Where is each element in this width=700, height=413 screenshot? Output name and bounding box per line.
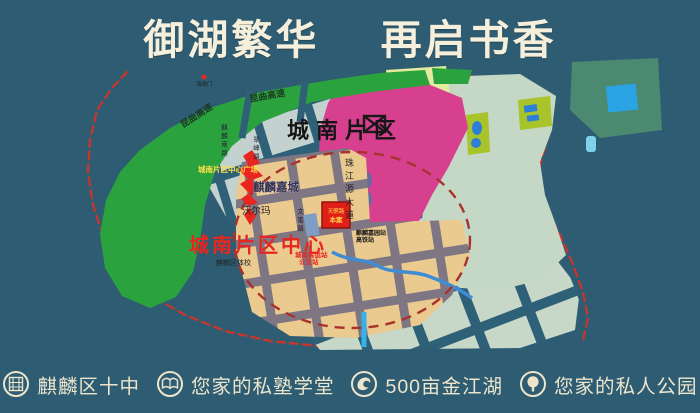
- tree-icon: [519, 370, 547, 398]
- olive-park-2: [518, 96, 552, 130]
- station-label-line1: 麒麟嘉园站: [356, 229, 386, 237]
- station-label-line2: 高铁站: [356, 236, 374, 244]
- note-label-line2: 公交站: [299, 257, 319, 266]
- book-icon: [156, 370, 184, 398]
- seal-icon: [2, 370, 30, 398]
- sports-school-label: 麒麟区体校: [216, 258, 251, 267]
- legend-item-lake: 500亩金江湖: [350, 370, 503, 399]
- lake-2: [471, 138, 481, 148]
- legend-label: 您家的私人公园: [554, 370, 698, 399]
- site-label-line2: 本案: [330, 215, 344, 224]
- district-map: 城南片区 城南片区中心 城南片区中心广场 麒麟嘉城 沃尔玛 昆曲高速 昆曲高速 …: [0, 0, 700, 413]
- wave-icon: [350, 370, 378, 398]
- gate-label: 海埂门: [196, 80, 213, 88]
- legend-label: 500亩金江湖: [385, 370, 503, 399]
- plaza-label: 城南片区中心广场: [198, 164, 258, 174]
- note-label-line1: 城南客运站: [295, 250, 328, 259]
- district-label: 城南片区: [287, 118, 403, 143]
- legend-label: 麒麟区十中: [37, 370, 140, 399]
- lake-1: [472, 121, 482, 135]
- poster: 御湖繁华 再启书香: [0, 0, 700, 413]
- legend: 麒麟区十中 您家的私塾学堂 500亩金江湖 您家的私: [0, 363, 700, 405]
- legend-label: 您家的私塾学堂: [191, 370, 335, 399]
- green-belt-ne: [432, 68, 472, 84]
- legend-item-private-school: 您家的私塾学堂: [156, 370, 335, 399]
- walmart-label: 沃尔玛: [242, 205, 271, 217]
- gate-marker: [202, 75, 207, 80]
- legend-item-park: 您家的私人公园: [519, 370, 698, 399]
- road-through-greenbelt-2: [300, 82, 305, 122]
- legend-item-school10: 麒麟区十中: [2, 370, 140, 399]
- jiacheng-label: 麒麟嘉城: [253, 180, 299, 194]
- small-water-icon: [586, 136, 596, 152]
- site-label-line1: 天麒路: [328, 207, 345, 215]
- avenue-label: 珠江源大道: [344, 157, 354, 223]
- ne-pond: [606, 84, 639, 113]
